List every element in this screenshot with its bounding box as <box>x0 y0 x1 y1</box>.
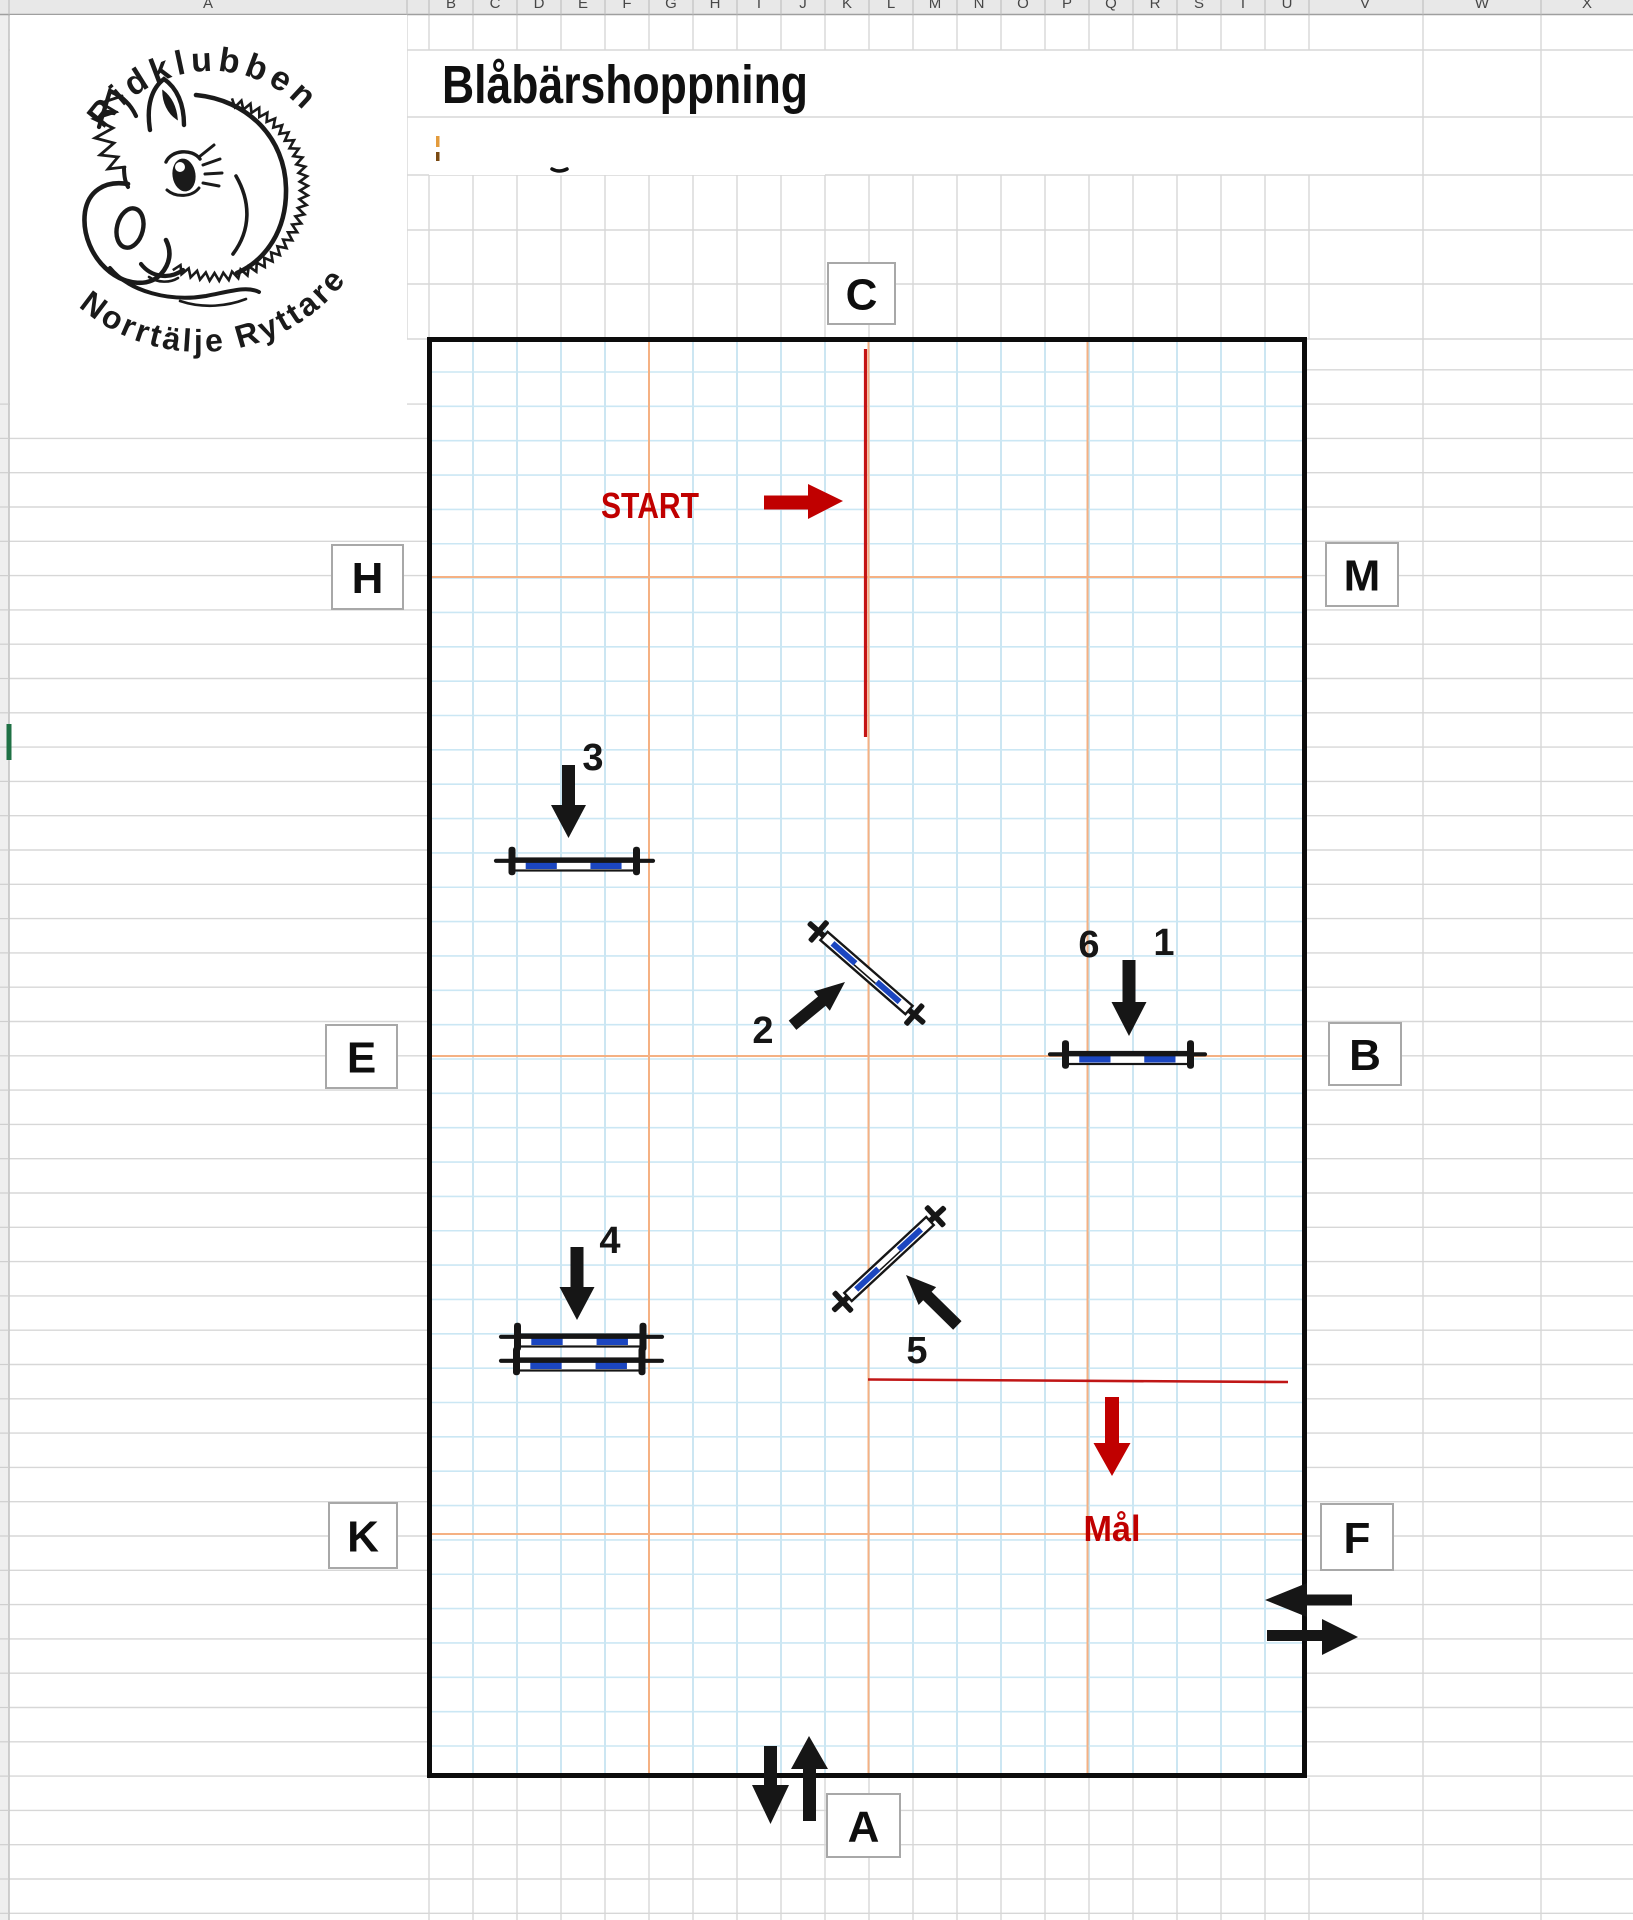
svg-text:I: I <box>757 0 761 12</box>
svg-text:N: N <box>974 0 985 12</box>
svg-text:Mål: Mål <box>1084 1508 1141 1549</box>
svg-text:K: K <box>347 1513 379 1562</box>
svg-text:Q: Q <box>1105 0 1117 12</box>
svg-text:H: H <box>710 0 721 12</box>
svg-text:C: C <box>846 271 878 320</box>
svg-text:START: START <box>601 485 699 526</box>
svg-text:J: J <box>799 0 807 12</box>
svg-text:D: D <box>534 0 545 12</box>
svg-text:4: 4 <box>599 1220 620 1262</box>
svg-text:U: U <box>1282 0 1293 12</box>
svg-text:E: E <box>578 0 588 12</box>
svg-text:P: P <box>1062 0 1072 12</box>
svg-text:S: S <box>1194 0 1204 12</box>
svg-text:3: 3 <box>582 737 603 779</box>
svg-text:B: B <box>1349 1031 1381 1080</box>
svg-text:X: X <box>1582 0 1592 12</box>
svg-text:B: B <box>446 0 456 12</box>
svg-text:K: K <box>842 0 852 12</box>
svg-text:2: 2 <box>752 1010 773 1052</box>
svg-text:C: C <box>490 0 501 12</box>
svg-text:E: E <box>347 1034 376 1083</box>
svg-text:M: M <box>929 0 942 12</box>
svg-text:L: L <box>887 0 895 12</box>
svg-text:W: W <box>1475 0 1490 12</box>
svg-text:O: O <box>1017 0 1029 12</box>
svg-text:H: H <box>352 554 384 603</box>
svg-text:G: G <box>665 0 677 12</box>
svg-text:Blåbärshoppning: Blåbärshoppning <box>442 55 808 115</box>
svg-text:A: A <box>203 0 213 12</box>
svg-text:F: F <box>622 0 631 12</box>
svg-text:F: F <box>1344 1514 1371 1563</box>
svg-text:T: T <box>1238 0 1247 12</box>
svg-text:V: V <box>1360 0 1370 12</box>
svg-text:A: A <box>848 1803 880 1852</box>
svg-text:1: 1 <box>1153 922 1174 964</box>
svg-text:5: 5 <box>906 1330 927 1372</box>
svg-text:6: 6 <box>1078 924 1099 966</box>
svg-text:R: R <box>1150 0 1161 12</box>
svg-text:M: M <box>1344 552 1381 601</box>
